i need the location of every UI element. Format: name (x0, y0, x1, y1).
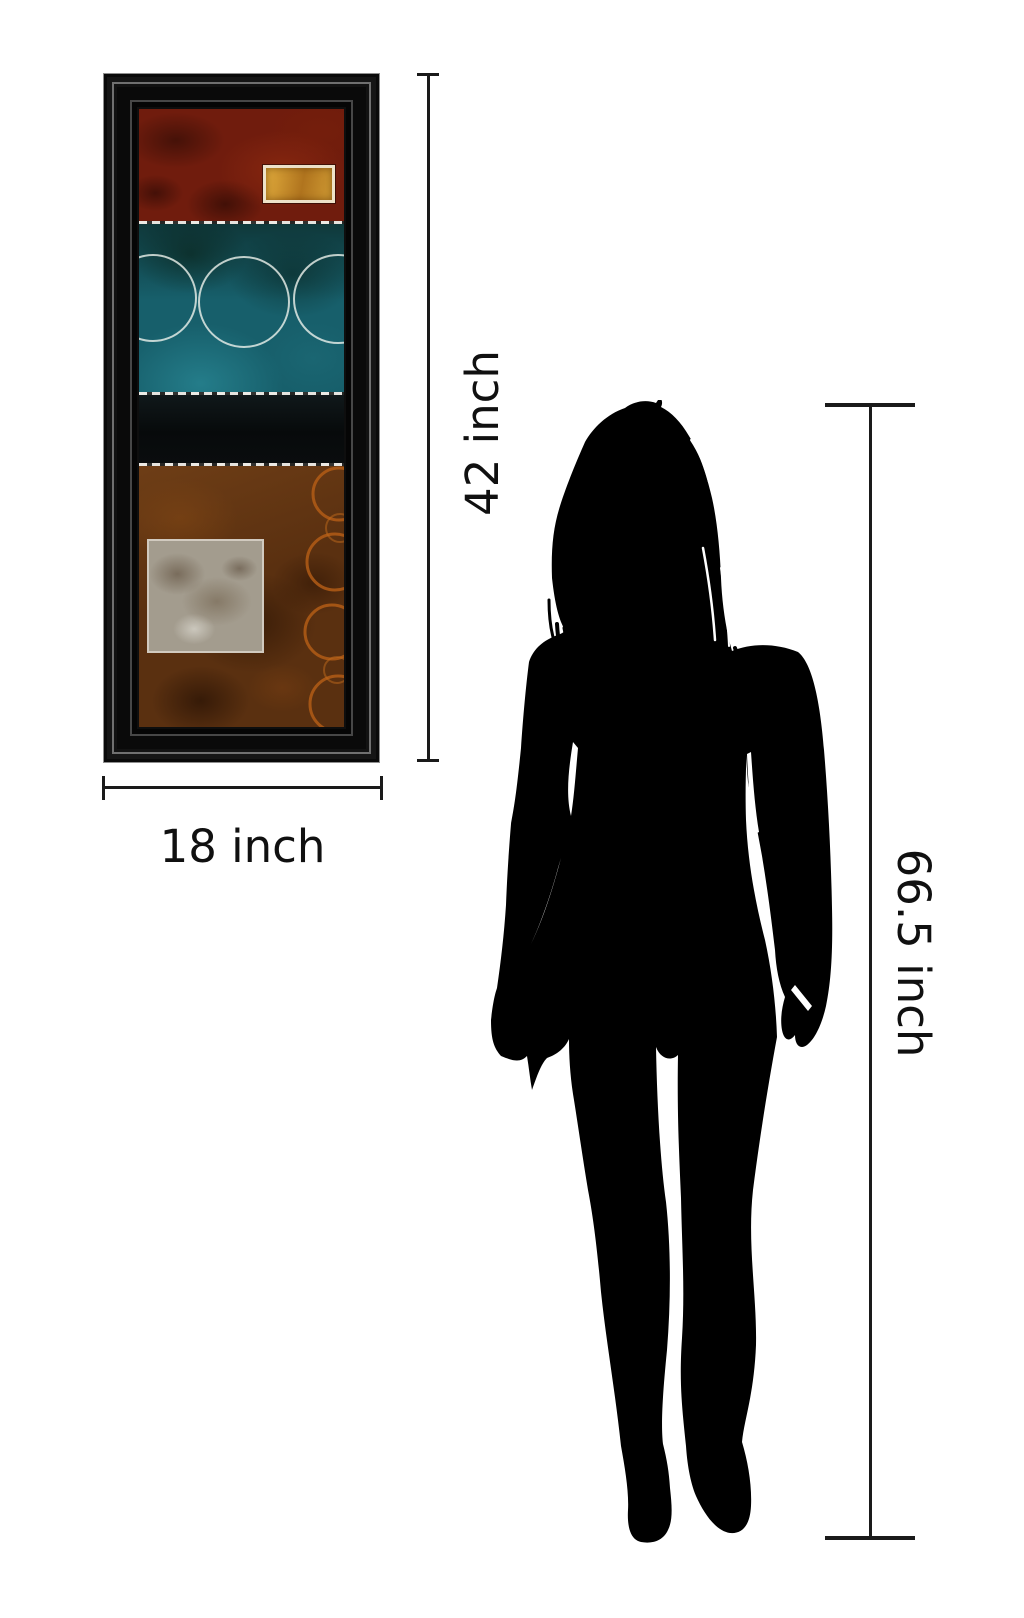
art-band-teal (139, 224, 344, 392)
person-height-dimension-label: 66.5 inch (888, 830, 938, 1076)
art-circle-outline (198, 256, 290, 348)
art-band-red (139, 109, 344, 221)
art-circle-outline (293, 254, 344, 344)
art-circle-outline (139, 254, 197, 342)
width-dimension-line (102, 786, 383, 789)
dimension-tick (825, 1536, 915, 1540)
dimension-tick (102, 776, 105, 800)
art-copper-rings (139, 466, 344, 727)
dimension-tick (417, 73, 439, 76)
abstract-artwork (139, 109, 344, 727)
dimension-tick (417, 759, 439, 762)
width-dimension-label: 18 inch (102, 822, 383, 872)
art-band-brown (139, 466, 344, 727)
picture-frame (103, 73, 380, 763)
art-gold-rectangle (263, 165, 335, 203)
size-comparison-diagram: 18 inch 42 inch 66.5 inc (0, 0, 1024, 1618)
dimension-tick (380, 776, 383, 800)
art-band-black (139, 395, 344, 463)
woman-silhouette (485, 400, 845, 1545)
height-dimension-line (427, 73, 430, 762)
dimension-tick (825, 403, 915, 407)
person-height-dimension-line (869, 403, 872, 1540)
